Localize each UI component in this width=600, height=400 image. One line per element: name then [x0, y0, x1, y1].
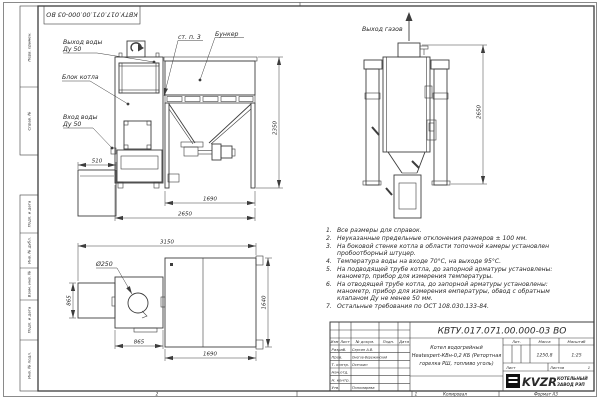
label-bunker: Бункер — [215, 31, 238, 38]
bunker-right-leg — [251, 103, 255, 188]
field-vzam-inv: Взам. инв. № — [27, 271, 32, 297]
dim-2650-side: 2650 — [477, 105, 483, 119]
technical-notes: 1.Все размеры для справок. 2.Неуказанные… — [326, 227, 580, 311]
field-perv-primen: Перв. примен. — [27, 32, 32, 61]
plan-view: Ø250 3150 865 865 1640 1690 — [67, 240, 273, 362]
name-tkontr: Осечкин — [352, 363, 368, 367]
auger-motor — [221, 146, 232, 158]
svg-text:Heatexpert-КВн-0,2 КБ (Ретортн: Heatexpert-КВн-0,2 КБ (Ретортная — [412, 353, 502, 359]
name-utv: Пономарева — [352, 386, 375, 390]
field-podp-data-1: Подп. и дата — [27, 200, 32, 227]
fold-mark-1: 1 — [415, 392, 418, 397]
col-podp: Подп. — [383, 339, 395, 344]
title-block: Изм Лист № докум. Подп. Дата Разраб. Про… — [330, 322, 594, 391]
row-prov: Пров. — [332, 354, 343, 359]
logo-line2: ЗАВОД РЭП — [557, 382, 585, 387]
format-label: Формат А3 — [534, 392, 558, 397]
sheets-value: 1 — [588, 365, 590, 370]
field-inv-podl: Инв. № подл. — [27, 352, 32, 379]
mass-value: 1250,8 — [536, 353, 552, 359]
label-wall-st-p3: ст. п. 3 — [178, 34, 201, 41]
scale-label: Масштаб — [567, 339, 586, 344]
row-nachotd: Нач.отд. — [332, 370, 349, 375]
name-prov: Онегов-Вережинский — [352, 355, 387, 359]
col-doc: № докум. — [355, 339, 375, 344]
note-item: 1.Все размеры для справок. — [326, 227, 580, 234]
copied-label: Копировал — [443, 392, 467, 397]
name-razrab: Сергин А.В. — [352, 348, 373, 352]
doc-number: КВТУ.017.071.00.000-03 ВО — [438, 327, 567, 337]
dim-1690-plan: 1690 — [203, 352, 217, 358]
note-item: 6.На отводящей трубе котла, до запорной … — [326, 281, 580, 303]
top-stamp-number: КВТУ.017.071.00.000-03 ВО — [46, 11, 137, 19]
product-name: Котел водогрейный Heatexpert-КВн-0,2 КБ … — [412, 345, 502, 367]
row-nkontr: Н. контр. — [332, 377, 350, 382]
boiler-upper-door — [119, 63, 159, 93]
note-item: 5.На подводящей трубе котла, до запорной… — [326, 266, 580, 281]
sheets-label: Листов — [549, 365, 565, 370]
label-boiler-block: Блок котла — [62, 74, 99, 81]
note-item: 4.Температура воды на входе 70°С, на вых… — [326, 258, 580, 265]
dim-1640: 1640 — [262, 295, 268, 309]
svg-text:Ду 50: Ду 50 — [62, 46, 81, 53]
kvzr-logo: KVZR КОТЕЛЬНЫЙ ЗАВОД РЭП — [506, 374, 588, 389]
note-item: 7.Остальные требования по ОСТ 108.030.13… — [326, 303, 580, 310]
side-view-dimensions: 2650 — [422, 45, 487, 184]
svg-text:горелка РШ, топливо уголь): горелка РШ, топливо уголь) — [419, 361, 493, 367]
label-water-out: Выход воды — [63, 39, 103, 46]
side-view: Выход газов 2650 — [362, 12, 487, 218]
mass-label: Масса — [538, 339, 551, 344]
plan-bunker — [165, 258, 256, 347]
front-view-dimensions: 510 2350 1690 2650 — [78, 57, 283, 221]
fold-mark-2: 2 — [156, 392, 159, 397]
bottom-strip: 2 1 Копировал Формат А3 — [156, 391, 559, 397]
label-gas-out: Выход газов — [362, 26, 403, 33]
scale-value: 1:25 — [571, 353, 581, 359]
row-tkontr: Т. контр. — [332, 362, 350, 367]
label-water-in: Вход воды — [63, 114, 98, 121]
engineering-drawing: Перв. примен. Справ. № Подп. и дата Инв.… — [0, 0, 600, 400]
dim-1690-front: 1690 — [203, 197, 217, 203]
field-sprav-no: Справ. № — [27, 112, 32, 131]
dim-510: 510 — [92, 159, 103, 165]
dim-3150: 3150 — [160, 240, 174, 246]
svg-text:Ду 50: Ду 50 — [62, 121, 81, 128]
plan-ash-box — [78, 283, 115, 318]
bunker-left-leg — [165, 103, 169, 188]
boiler-firebox — [117, 150, 162, 182]
auger-gearbox — [212, 144, 221, 160]
field-inv-dubl: Инв. № дубл. — [27, 237, 32, 264]
side-ash-box — [394, 175, 421, 218]
sheet-label: Лист — [505, 365, 516, 370]
top-stamp: КВТУ.017.071.00.000-03 ВО — [44, 6, 140, 24]
plan-boiler — [115, 277, 163, 328]
dim-865-left: 865 — [67, 295, 73, 306]
front-view: Выход воды Ду 50 Блок котла Вход воды Ду… — [62, 31, 283, 221]
bunker-box — [165, 61, 255, 95]
ash-box — [78, 170, 116, 216]
side-chimney — [398, 43, 420, 57]
dim-2650-front: 2650 — [178, 212, 192, 218]
label-dia-250: Ø250 — [95, 260, 113, 268]
lit-label: Лит. — [511, 339, 521, 344]
row-razrab: Разраб. — [332, 347, 347, 352]
col-data: Дата — [398, 339, 410, 344]
left-margin-fields: Перв. примен. Справ. № Подп. и дата Инв.… — [20, 6, 38, 391]
svg-text:Котел водогрейный: Котел водогрейный — [430, 345, 483, 351]
dim-865-bottom: 865 — [134, 340, 145, 346]
side-body — [383, 57, 430, 152]
logo-line1: КОТЕЛЬНЫЙ — [557, 376, 588, 381]
logo-text: KVZR — [522, 375, 557, 389]
row-utv: Утв. — [332, 385, 340, 390]
dim-2350: 2350 — [273, 121, 279, 135]
col-izm: Изм — [331, 339, 339, 344]
plan-chimney-circle — [128, 293, 148, 313]
sheet-frame: Перв. примен. Справ. № Подп. и дата Инв.… — [4, 3, 597, 397]
field-podp-data-2: Подп. и дата — [27, 306, 32, 333]
note-item: 2.Неуказанные предельные отклонения разм… — [326, 235, 580, 242]
drawing-sheet: Перв. примен. Справ. № Подп. и дата Инв.… — [0, 0, 600, 400]
col-list: Лист — [339, 339, 350, 344]
note-item: 3.На боковой стенке котла в области топо… — [326, 243, 580, 258]
front-view-labels: Выход воды Ду 50 Блок котла Вход воды Ду… — [62, 31, 244, 148]
